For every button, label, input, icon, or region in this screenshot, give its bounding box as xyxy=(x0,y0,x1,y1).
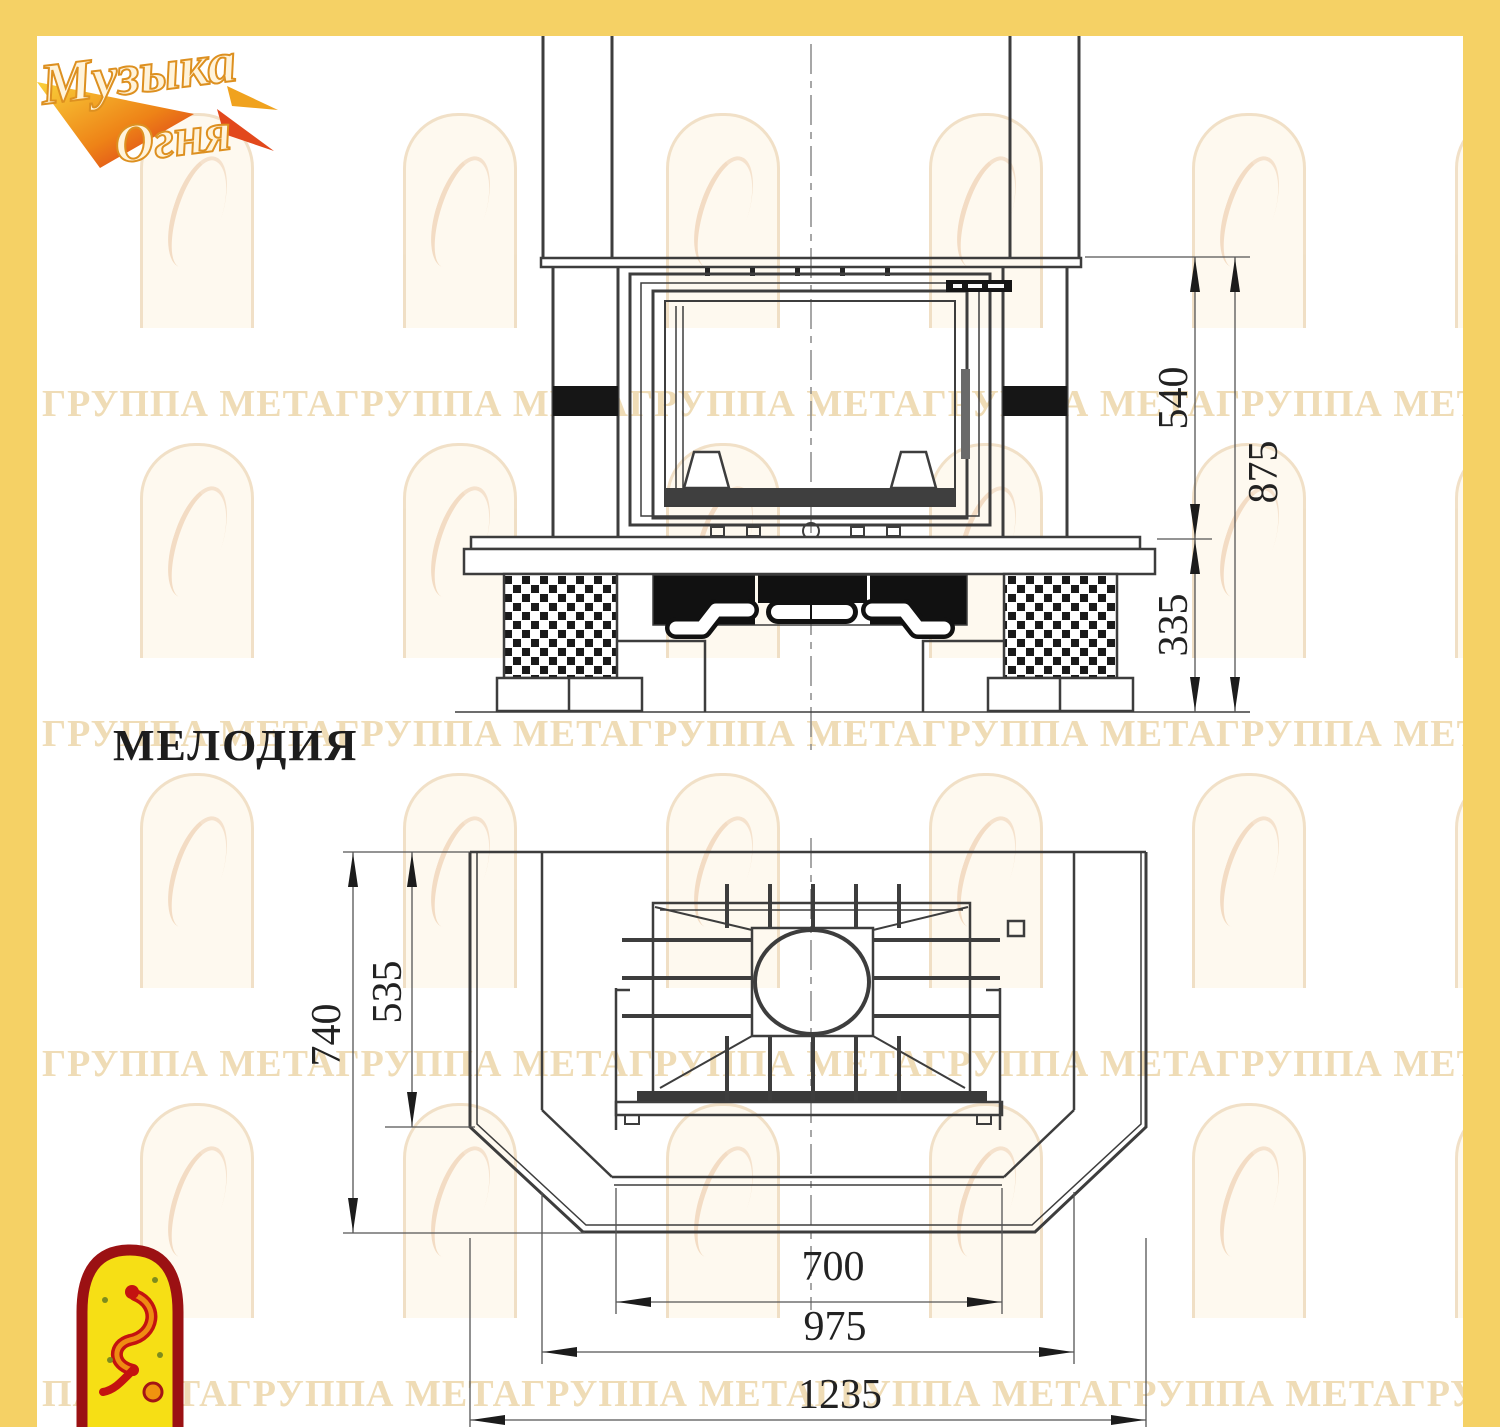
andiron-left xyxy=(684,452,729,488)
dimension-label-1235: 1235 xyxy=(798,1372,882,1418)
right-yellow-bar xyxy=(1463,0,1500,1427)
plan-view xyxy=(470,838,1146,1310)
dimension-label-700: 700 xyxy=(802,1244,865,1290)
technical-drawing: 540 875 335 xyxy=(0,0,1500,1427)
mantel-shelf-bottom xyxy=(464,549,1155,574)
left-yellow-bar xyxy=(0,0,37,1427)
dimension-label-875: 875 xyxy=(1241,441,1287,504)
base-pillar-right xyxy=(1004,574,1117,678)
flue-opening xyxy=(755,930,869,1034)
glass-sill xyxy=(665,488,955,505)
firebox-plan xyxy=(616,884,1024,1124)
page: ГРУППА МЕТАГРУППА МЕТАГРУППА МЕТАГРУППА … xyxy=(0,0,1500,1427)
hearth-walls xyxy=(616,988,1000,1130)
door-handle xyxy=(961,369,970,459)
right-column-black-band xyxy=(1003,386,1067,416)
base-recess xyxy=(653,575,967,628)
plan-outline xyxy=(470,852,1146,1232)
dimension-label-535: 535 xyxy=(365,961,411,1024)
model-title: МЕЛОДИЯ xyxy=(113,720,358,771)
front-rail xyxy=(616,1102,1002,1115)
dimension-label-740: 740 xyxy=(304,1004,350,1067)
dimension-label-540: 540 xyxy=(1151,367,1197,430)
logo-text-line2: Огня xyxy=(111,101,234,175)
front-view xyxy=(455,36,1250,750)
firebox-door xyxy=(630,274,1012,525)
mantel-shelf-top xyxy=(471,537,1140,549)
air-connector xyxy=(1008,921,1024,936)
company-logo: Музыка Огня xyxy=(22,14,282,192)
dimension-label-335: 335 xyxy=(1151,594,1197,657)
left-column-black-band xyxy=(553,386,618,416)
firebird-emblem xyxy=(75,1240,185,1427)
emblem-sun xyxy=(144,1383,162,1401)
andiron-right xyxy=(891,452,936,488)
dimension-label-975: 975 xyxy=(804,1304,867,1350)
base-pillar-left xyxy=(504,574,617,678)
